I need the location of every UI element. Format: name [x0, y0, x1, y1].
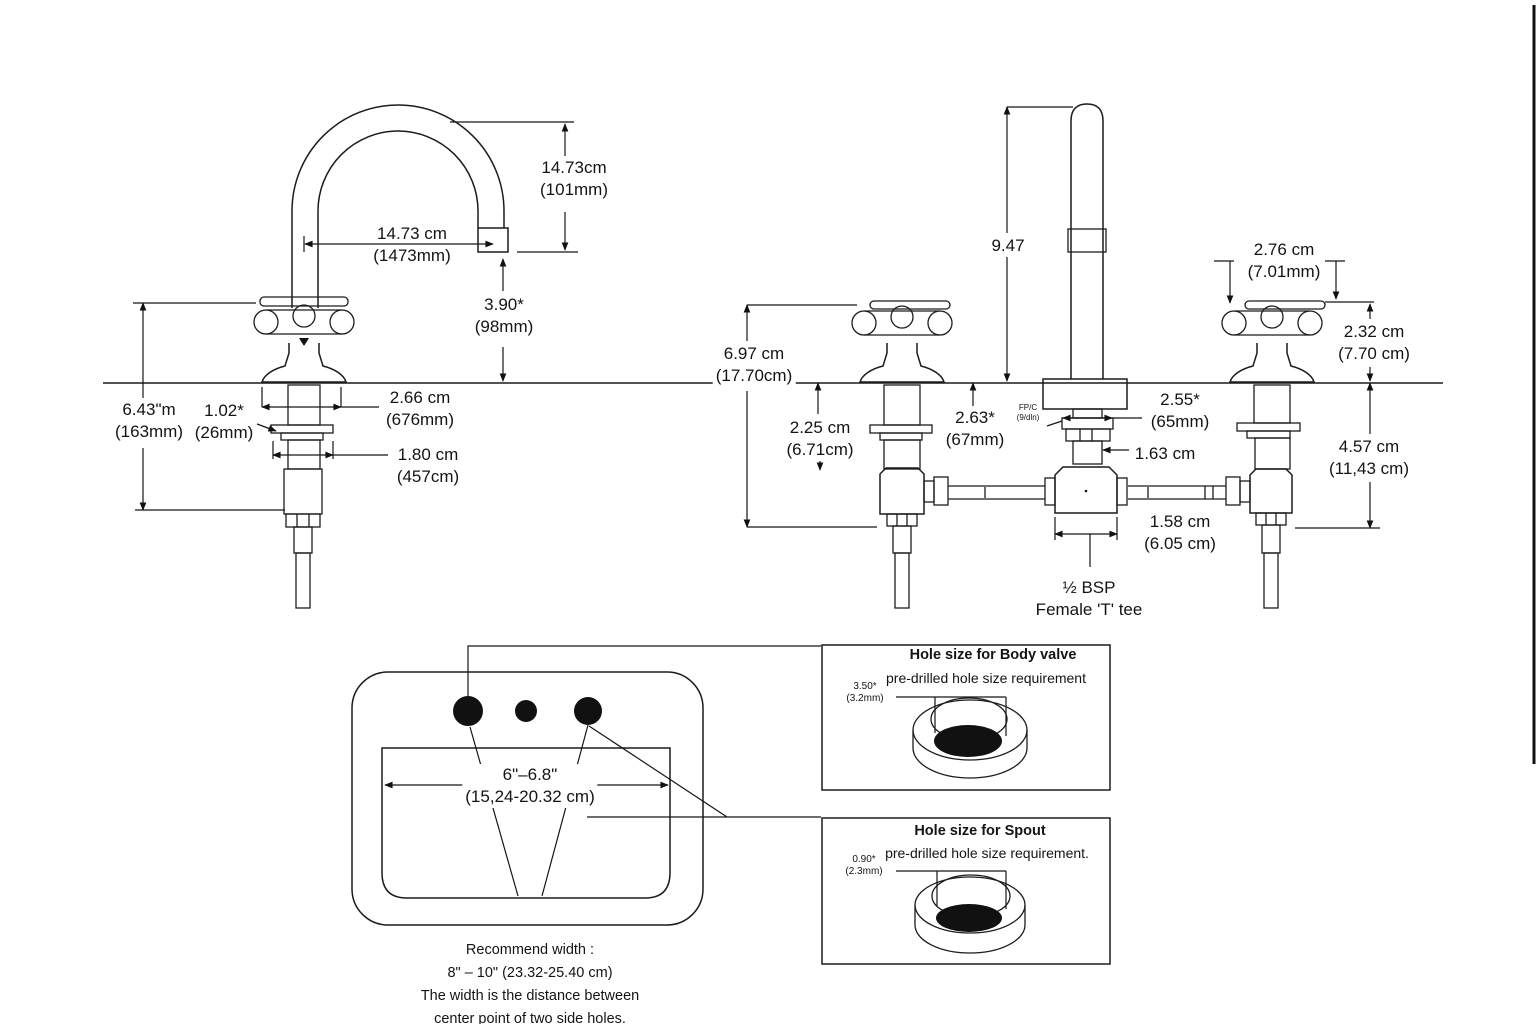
tee-right-nut	[1117, 478, 1127, 505]
gooseneck-outer	[292, 105, 504, 308]
body-valve-box	[822, 645, 1110, 790]
spout-hole-dim: 0.90* (2.3mm)	[843, 854, 884, 878]
dim-handle-height-label: 2.32 cm (7.70 cm)	[1335, 321, 1413, 365]
diagram-linework	[0, 0, 1536, 1024]
dim-spout-clearance-label: 3.90* (98mm)	[472, 294, 537, 338]
left-shank-threads-lower	[884, 440, 920, 469]
dim-handle-width-label: 2.76 cm (7.01mm)	[1245, 239, 1324, 283]
body-valve-hole-dim: 3.50* (3.2mm)	[844, 681, 885, 705]
dim-base-width-label: 1.63 cm	[1132, 443, 1198, 465]
dim-riser-height-label: 9.47	[988, 235, 1027, 257]
left-coupling-nut	[934, 477, 948, 505]
dim-right-spacing-label: 2.55* (65mm)	[1148, 389, 1213, 433]
mounting-nut	[281, 433, 323, 440]
leader-to-spout-box	[587, 726, 821, 817]
left-handle-bell	[860, 343, 944, 382]
gooseneck-inner	[318, 131, 478, 308]
valve-body	[284, 469, 322, 514]
dimension-lines	[133, 107, 1380, 567]
right-coupling-nut	[1226, 477, 1240, 505]
body-valve-ring	[913, 698, 1027, 778]
left-washer	[870, 425, 932, 433]
right-supply-tube	[1264, 553, 1278, 608]
dim-front-overall-height-label: 6.97 cm (17.70cm)	[713, 343, 796, 387]
side-view-faucet	[254, 105, 508, 608]
dim-spout-reach-label: 14.73 cm (1473mm)	[370, 223, 453, 267]
left-valve-body	[880, 468, 924, 514]
left-supply-stub	[893, 526, 911, 553]
threaded-shank-upper	[288, 385, 320, 425]
faucet-spec-diagram: 14.73cm (101mm) 14.73 cm (1473mm) 3.90* …	[0, 0, 1536, 1024]
dim-hole-spread-label: 6"–6.8" (15,24-20.32 cm)	[462, 764, 597, 808]
spout-hole-leader	[896, 871, 1006, 909]
right-shank-threads-lower	[1255, 438, 1290, 469]
left-supply-tube	[895, 553, 909, 608]
front-view-assembly	[852, 104, 1325, 608]
left-valve-port	[924, 481, 934, 502]
right-handle-bell	[1230, 343, 1314, 382]
left-locknut	[880, 433, 922, 440]
body-valve-box-title: Hole size for Body valve	[907, 646, 1080, 664]
spout-locknut	[1066, 429, 1110, 441]
spout-washer	[1062, 418, 1113, 429]
right-washer	[1237, 423, 1300, 431]
left-connector-pipe	[948, 486, 1045, 499]
handle-bell-escutcheon	[262, 343, 346, 382]
dim-overall-height-label: 6.43"m (163mm)	[112, 399, 186, 443]
tiny-fitting-note: FP/C (9/dln)	[1016, 403, 1041, 423]
drain-pointer-lines	[470, 725, 588, 896]
cross-handle-right	[1222, 301, 1325, 335]
dim-left-spacing-label: 2.63* (67mm)	[943, 407, 1008, 451]
right-shank-threads-upper	[1254, 385, 1290, 423]
supply-tube	[296, 553, 310, 608]
spout-riser	[1071, 104, 1103, 379]
spout-tip	[478, 228, 508, 252]
dim-upper-shank-label: 2.66 cm (676mm)	[383, 387, 457, 431]
right-connector-pipe	[1128, 486, 1226, 499]
cross-handle-left	[852, 301, 952, 335]
hex-nut	[286, 514, 320, 527]
leader-to-body-valve-box	[468, 646, 821, 696]
right-faucet-hole	[574, 697, 602, 725]
spout-threads-lower	[1073, 441, 1102, 464]
center-spout-hole	[515, 700, 537, 722]
right-valve-port	[1240, 481, 1250, 502]
tee-fitting-label: ½ BSP Female 'T' tee	[1033, 577, 1146, 621]
dim-washer-label: 1.02* (26mm)	[192, 400, 257, 444]
spout-box-subtitle: pre-drilled hole size requirement.	[882, 845, 1092, 862]
dim-tee-width-label: 1.58 cm (6.05 cm)	[1141, 511, 1219, 555]
dim-shank-exposed-label: 2.25 cm (6.71cm)	[783, 417, 856, 461]
supply-stub	[294, 527, 312, 553]
left-shank-threads-upper	[884, 385, 920, 425]
spout-collar	[1068, 229, 1106, 252]
dim-valve-depth-label: 4.57 cm (11,43 cm)	[1326, 436, 1412, 480]
spout-threads-upper	[1073, 409, 1102, 418]
mounting-washer	[271, 425, 333, 433]
left-faucet-hole	[453, 696, 483, 726]
spout-ring	[915, 875, 1025, 953]
right-hex-nut	[1256, 513, 1286, 525]
spout-box-title: Hole size for Spout	[911, 822, 1048, 840]
right-valve-body	[1250, 469, 1292, 513]
dim-spout-height-label: 14.73cm (101mm)	[537, 157, 611, 201]
body-valve-box-subtitle: pre-drilled hole size requirement	[883, 670, 1089, 687]
dim-lower-shank-label: 1.80 cm (457cm)	[394, 444, 462, 488]
tee-left-nut	[1045, 478, 1055, 505]
right-locknut	[1247, 431, 1290, 438]
right-supply-stub	[1262, 525, 1280, 553]
left-hex-nut	[887, 514, 917, 526]
cross-handle-side-view	[254, 297, 354, 346]
recommend-width-note: Recommend width : 8" – 10" (23.32-25.40 …	[418, 939, 642, 1024]
